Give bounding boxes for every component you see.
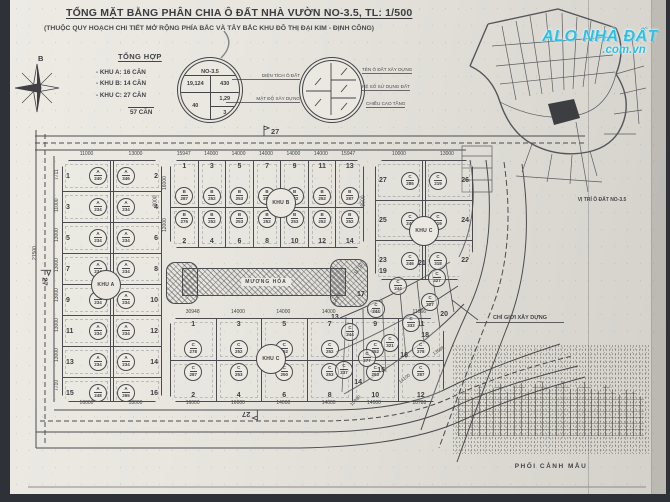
lot-area-circle: C285 [401,172,419,190]
paper-edge-shade [652,0,666,494]
lot-area-circle: C321 [381,334,399,352]
lot-cell: 1A240 [63,161,111,191]
lot-area-circle: A234 [117,291,135,309]
lot-cell: 15C277 [358,349,374,365]
khu-c-upper-label-circle: KHU C [409,216,439,246]
lot-number: 14 [150,359,158,366]
lot-area-circle: A234 [117,198,135,216]
lot-number: 4 [210,238,214,245]
lot-cell: B25214 [335,208,363,247]
dimension-label: 14000 [261,401,306,406]
lot-number: 14 [354,379,362,386]
lot-cell: A23414 [113,347,161,377]
lot-row: B2762B2524B2536B2528B25310B25212B25214 [171,208,363,247]
dimension-label: 14000 [261,310,306,315]
left-road-dim: 21500 [32,246,38,260]
summary-heading: TỔNG HỢP [118,52,162,61]
lot-cell: A2346 [113,223,161,253]
road-section-marker: 27 [263,125,279,136]
lot-cell: 19C244 [389,277,405,293]
lot-area-value: 253 [235,372,243,377]
lot-area-circle: C318 [429,252,447,270]
lot-area-circle: C327 [428,269,446,287]
lot-number: 7 [328,321,332,328]
lot-area-value: 234 [94,331,102,336]
lot-area-circle: C278 [184,340,202,358]
lot-number: 9 [373,321,377,328]
canal-label: MƯƠNG HÓA [241,278,291,286]
lot-area-value: 327 [433,278,441,283]
lot-cell: B2762 [171,208,198,247]
lot-area-circle: A234 [117,353,135,371]
dimension-label: 13000 [52,250,62,280]
lot-area-value: 277 [363,358,371,363]
dimension-label: 14000 [307,152,334,157]
lot-area-circle: A346 [117,167,135,185]
lot-area-circle: A234 [117,229,135,247]
lot-area-value: 252 [263,219,271,224]
lot-area-value: 252 [318,219,326,224]
lot-number: 3 [237,321,241,328]
lot-info-circle: NO-3.5 19,124 430 40 1,29 3 [180,60,240,120]
lot-area-value: 219 [434,181,442,186]
lot-area-circle: A234 [117,260,135,278]
lot-number: 12 [150,328,158,335]
lot-area-circle: C227 [421,293,439,311]
lot-area-circle: B287 [175,187,193,205]
dimension-label: 7711 [52,160,62,190]
lot-cell: 3C252 [216,319,262,360]
lot-number: 14 [346,238,354,245]
lot-area-circle: C287 [184,363,202,381]
lot-area-circle: A240 [89,167,107,185]
lot-number: 6 [237,238,241,245]
lot-number: 7 [66,266,70,273]
lot-area-value: 287 [346,196,354,201]
block-khu-c-main: 1C2783C2525C2527C2529C25211C278C2872C253… [170,318,444,402]
lot-area-circle: A234 [89,229,107,247]
lot-area-value: 244 [394,286,402,291]
rowhouses-silhouette [458,373,644,437]
lot-number: 5 [66,235,70,242]
site-location-marker [548,99,580,125]
lot-number: 18 [421,332,429,339]
dimension-label: 11000 [62,152,111,157]
lot-cell: C2872 [171,361,216,401]
khu-a-label-circle: KHU A [91,270,121,300]
lot-cell: 13B287 [335,161,363,207]
lot-number: 16 [400,352,408,359]
legend-label-density: MẬT ĐỘ XÂY DỰNG [226,96,300,103]
lot-number: 1 [191,321,195,328]
lot-number: 25 [379,217,387,224]
lot-cell: 5A234 [63,223,111,253]
lane-a-dim: 8000 [153,195,159,206]
lot-number: 20 [440,311,448,318]
summary-item-khu-a: - KHU A: 16 CĂN [96,67,162,78]
lot-number: 3 [210,163,214,170]
lot-area-value: 246 [406,261,414,266]
lot-cell: 18C332 [402,314,418,330]
lot-area-value: 234 [122,331,130,336]
perspective-caption: PHỐI CẢNH MẪU [452,463,650,470]
dimension-label: 13000 [52,340,62,370]
khu-c-main-label-circle: KHU C [256,344,286,374]
lot-area-value: 265 [122,393,130,398]
perspective-image [452,344,650,454]
lot-area-value: 227 [426,302,434,307]
lot-area-value: 287 [417,372,425,377]
lot-area-circle: C244 [389,277,407,295]
dimension-label: 15947 [170,152,197,157]
summary-item-khu-b: - KHU B: 14 CĂN [96,78,162,89]
lot-cell: C21926 [425,161,472,200]
lot-area-value: 252 [235,349,243,354]
summary-legend: TỔNG HỢP - KHU A: 16 CĂN - KHU B: 14 CĂN… [96,52,162,119]
lot-number: 16 [150,390,158,397]
summary-total: 57 CĂN [128,107,154,116]
lot-number: 5 [282,321,286,328]
dimension-label: 16000 [62,401,111,406]
lot-number: 10 [371,392,379,399]
lot-area-circle: C244 [367,300,385,318]
lot-area-circle: C237 [335,361,353,379]
lot-number: 12 [417,392,425,399]
lot-number: 23 [379,257,387,264]
lot-area-value: 278 [417,349,425,354]
lot-area-value: 234 [122,207,130,212]
lot-area-circle: C252 [230,340,248,358]
lot-area: 19,124 [181,76,211,92]
lot-number: 11 [318,163,325,170]
lot-area-value: 252 [318,196,326,201]
legend-circle-icon [302,60,362,120]
lot-area-circle: C278 [412,340,430,358]
lot-area-circle: C287 [412,363,430,381]
lot-number: 1 [182,163,186,170]
lot-area-value: 234 [94,207,102,212]
lot-cell: 14C237 [335,361,351,377]
build-line-label: CHỈ GIỚI XÂY DỰNG [476,315,564,323]
lot-area-value: 248 [94,393,102,398]
khu-c-main-bottom-dims: 160001600014000140001400010788 [170,401,442,406]
dimension-label: 16000 [215,401,260,406]
watermark: ALO NHÀ ĐẤT .com.vn [534,28,666,56]
lot-number: 6 [154,235,158,242]
lot-row: 13A234A23414 [63,346,161,377]
dimension-label: 12000 [160,204,170,246]
road-section-marker: 27 [242,410,258,421]
lot-area-value: 253 [236,219,244,224]
lot-number: 1 [66,173,70,180]
lot-area-value: 234 [122,300,130,305]
dimension-label: 14000 [225,152,252,157]
lot-number: 2 [154,173,158,180]
lot-number: 6 [282,392,286,399]
lot-row: 3A234A2344 [63,191,161,222]
lot-cell: B25212 [308,208,336,247]
lot-number: 11 [66,328,73,335]
lot-area-value: 321 [386,343,394,348]
lot-area-value: 252 [208,219,216,224]
lot-number: 5 [237,163,241,170]
lot-area-circle: C246 [401,252,419,270]
lot-area-circle: C244 [341,323,359,341]
lot-area-value: 346 [122,176,130,181]
lot-area-circle: B252 [203,187,221,205]
lot-cell: C2534 [216,361,262,401]
lot-number: 8 [154,266,158,273]
lot-area-value: 332 [407,323,415,328]
legend-label-coefficient: HỆ SỐ SỬ DỤNG ĐẤT [362,84,410,91]
lot-cell: 20C227 [421,293,437,309]
lot-cell: A23412 [113,316,161,346]
dimension-label: 13000 [111,152,160,157]
marker-flag-icon [263,125,270,136]
dimension-label: 7710 [52,370,62,400]
compass-rose: B [10,56,66,126]
lot-cell: B2536 [225,208,253,247]
dimension-label: 14000 [306,401,351,406]
lot-area-circle: C253 [230,363,248,381]
summary-item-khu-c: - KHU C: 27 CĂN [96,90,162,101]
lot-number: 15 [66,390,74,397]
lot-number: 3 [66,204,70,211]
scanned-plan-photo: TỔNG MẶT BẰNG PHÂN CHIA Ô ĐẤT NHÀ VƯỜN N… [0,0,670,502]
lot-area-value: 237 [340,370,348,375]
dimension-label: 30948 [170,310,215,315]
lot-area-circle: B276 [175,210,193,228]
lot-cell: 11A234 [63,316,111,346]
lot-cell: 13C244 [341,323,357,339]
dimension-label: 13000 [423,152,471,157]
lot-cell: 11B252 [308,161,336,207]
lot-area-circle: A234 [89,198,107,216]
lot-area-value: 244 [346,332,354,337]
marker-flag-icon [41,269,52,276]
lot-number: 7 [265,163,269,170]
lot-area-value: 278 [189,349,197,354]
lot-row: 1A240A3462 [63,161,161,191]
lot-number: 24 [461,217,469,224]
lane-c-dim: 8500 [361,195,367,206]
khu-c-upper-top-dims: 1000013000 [375,152,471,157]
legend-label-name: TÊN Ô ĐẤT XÂY DỰNG [362,67,412,74]
lot-area-value: 253 [326,372,334,377]
summary-items: - KHU A: 16 CĂN - KHU B: 14 CĂN - KHU C:… [96,67,162,101]
dimension-label: 13000 [52,280,62,310]
lot-number: 2 [191,392,195,399]
dimension-label: 14000 [197,152,224,157]
lot-area-value: 240 [94,176,102,181]
lot-number: 15 [377,367,385,374]
lot-cell: 17C244 [367,300,383,316]
page-subtitle: (THUỘC QUY HOẠCH CHI TIẾT MỞ RỘNG PHÍA B… [44,25,484,32]
khu-a-left-dims: 77111100013000130001300013000130007710 [52,160,62,400]
lot-area-circle: A234 [89,353,107,371]
dimension-label: 13000 [52,220,62,250]
lot-number: 8 [328,392,332,399]
page-title: TỔNG MẶT BẰNG PHÂN CHIA Ô ĐẤT NHÀ VƯỜN N… [66,7,486,19]
lot-area-circle: B253 [230,187,248,205]
lot-area-value: 234 [94,300,102,305]
inset-caption: VỊ TRÍ Ô ĐẤT NO-3.5 [552,196,652,203]
khu-a-top-dims: 1100013000 [62,152,160,157]
lot-area-value: 252 [346,219,354,224]
watermark-line1: ALO NHÀ ĐẤT [534,28,666,46]
lot-area-circle: A234 [117,322,135,340]
lot-number: 9 [66,297,70,304]
khu-b-label-circle: KHU B [266,188,296,218]
lot-number: 17 [357,291,365,298]
lot-number: 13 [346,163,354,170]
lot-area-circle: B287 [341,187,359,205]
lot-area-value: 234 [94,238,102,243]
lot-number: 21 [418,260,426,267]
lot-area-circle: C219 [429,172,447,190]
lot-cell: 21C327 [428,269,444,285]
khu-a-bottom-dims: 1600018000 [62,401,160,406]
lot-number: 9 [293,163,297,170]
perspective-figure: PHỐI CẢNH MẪU [452,344,650,472]
lot-number: 10 [291,238,299,245]
lot-area-value: 252 [326,349,334,354]
road-section-marker: 27 [41,269,52,285]
dimension-label: 15947 [335,152,362,157]
lot-area-value: 287 [181,196,189,201]
lot-area-value: 253 [236,196,244,201]
lot-number: 19 [379,268,387,275]
lot-number: 27 [379,177,387,184]
lot-number: 13 [331,314,339,321]
lot-number: 12 [318,238,326,245]
lot-area-value: 276 [181,219,189,224]
lot-area-circle: B252 [313,210,331,228]
dimension-label: 10000 [375,152,423,157]
lot-row: 11A234A23412 [63,315,161,346]
dimension-label: 14000 [280,152,307,157]
khu-b-top-dims: 15947140001400014000140001400015947 [170,152,362,157]
lot-number: 10 [150,297,158,304]
lot-cell: 16C321 [381,334,397,350]
lot-area-value: 287 [189,372,197,377]
lot-cell: 27C285 [376,161,423,200]
lot-number: 4 [237,392,241,399]
dimension-label: 13000 [52,310,62,340]
dimension-label: 14000 [351,401,396,406]
lot-number: 2 [182,238,186,245]
lot-area-circle: B252 [203,210,221,228]
lot-cell: 3A234 [63,192,111,222]
lot-number: 13 [66,359,74,366]
dimension-label: 11000 [52,190,62,220]
lot-cell: 1C278 [171,319,216,360]
lot-cell: 13A234 [63,347,111,377]
lot-area-value: 285 [406,181,414,186]
dimension-label: 16000 [170,401,215,406]
dimension-label: 14000 [252,152,279,157]
lot-area-value: 244 [372,309,380,314]
lot-number: 26 [461,177,469,184]
north-label: B [38,54,43,63]
lot-area-circle: C277 [358,349,376,367]
lot-area-value: 234 [122,362,130,367]
lot-area-circle: A234 [89,322,107,340]
lot-cell: 1B287 [171,161,198,207]
khu-b-left-dims: 1600012000 [160,162,170,246]
compass-icon [10,56,64,118]
lot-cell: 5B253 [225,161,253,207]
lot-area-circle: C252 [321,340,339,358]
lot-row: 27C285C21926 [376,161,472,200]
lot-area-value: 253 [291,219,299,224]
dimension-label: 10788 [397,401,442,406]
lot-cell: B2524 [198,208,226,247]
lot-area-circle: B252 [313,187,331,205]
lot-area-value: 250 [280,372,288,377]
lot-number: 8 [265,238,269,245]
legend-label-floors: CHIỀU CAO TẦNG [366,101,405,108]
lot-area-value: 234 [94,362,102,367]
dimension-label: 14000 [215,310,260,315]
dimension-label: 16000 [160,162,170,204]
lot-area-circle: C332 [402,314,420,332]
lot-row: 5A234A2346 [63,222,161,253]
lot-area-value: 234 [122,269,130,274]
lot-area-circle: B253 [230,210,248,228]
legend-label-area: DIỆN TÍCH Ô ĐẤT [232,73,300,80]
dimension-label: 14000 [306,310,351,315]
lot-cell: A3462 [113,161,161,191]
lot-area-circle: B252 [341,210,359,228]
lot-area-value: 318 [434,261,442,266]
lot-area-value: 234 [122,238,130,243]
marker-flag-icon [251,410,258,421]
dimension-label: 18000 [111,401,160,406]
lot-area-value: 252 [208,196,216,201]
lot-cell: 3B252 [198,161,226,207]
